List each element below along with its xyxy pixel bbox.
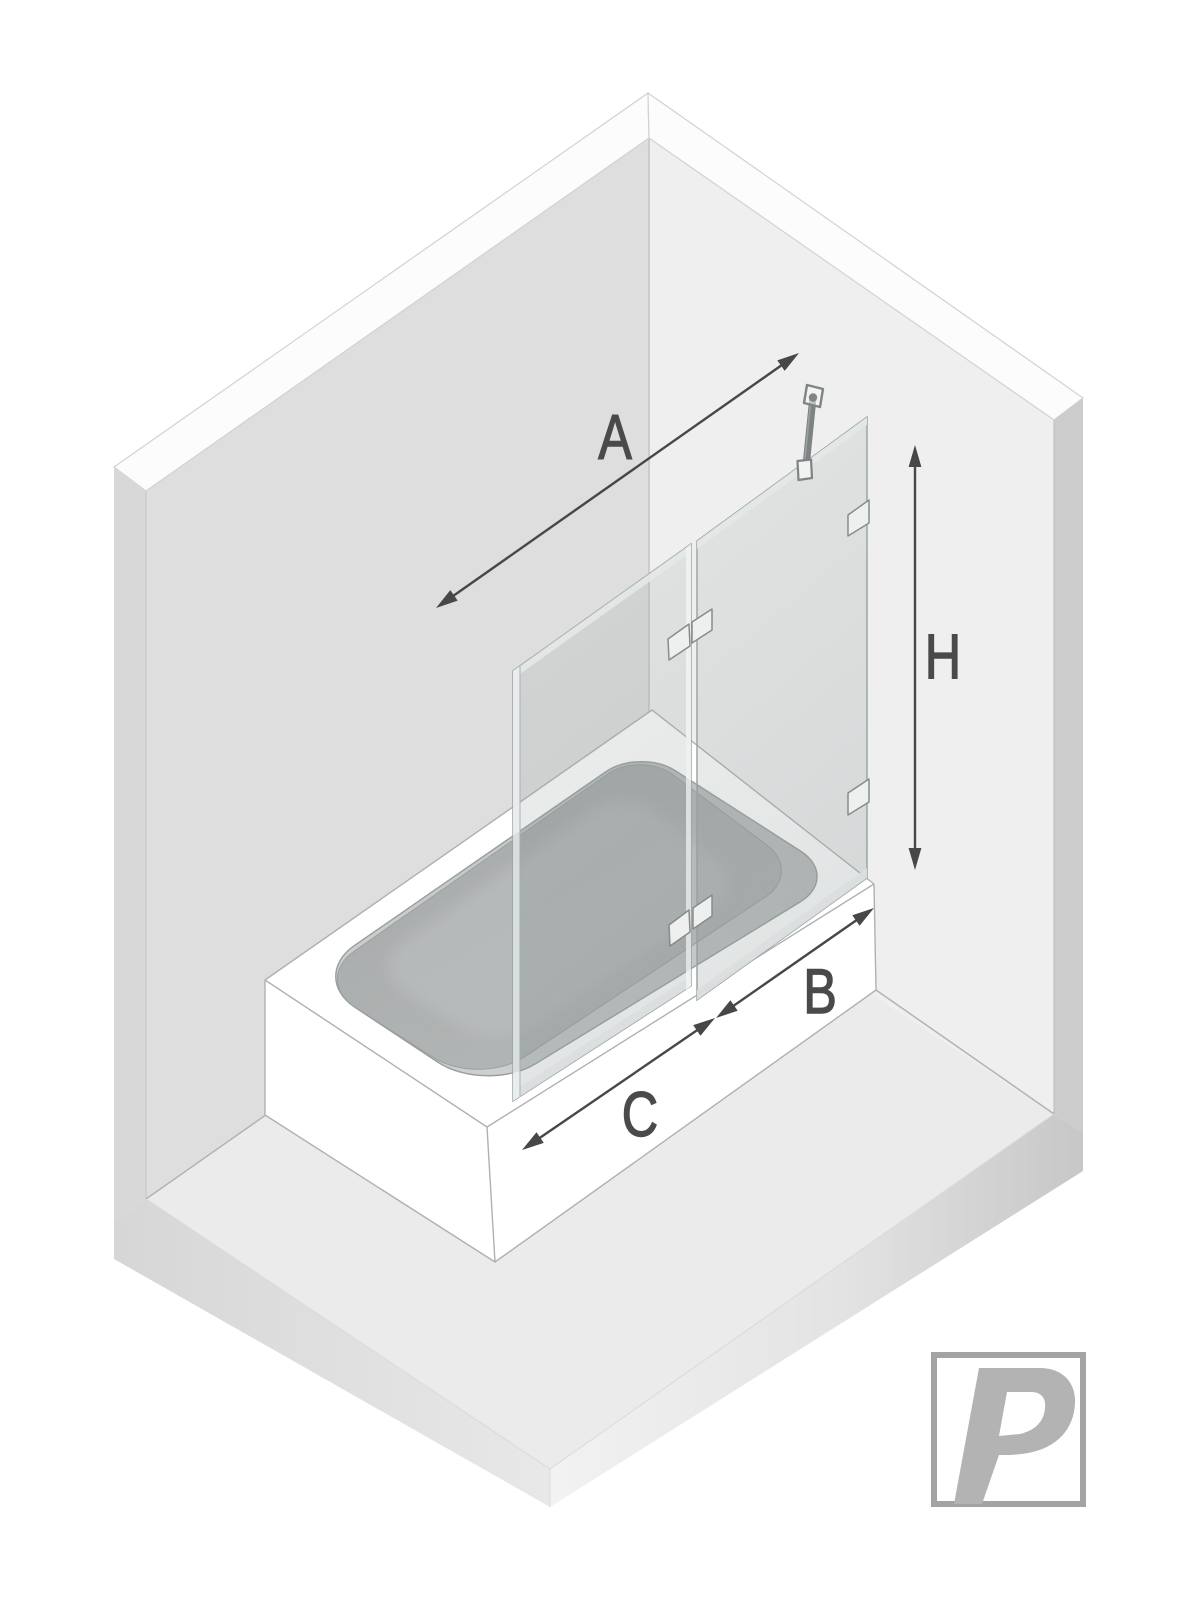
svg-text:A: A: [598, 402, 632, 473]
svg-text:H: H: [925, 622, 961, 693]
svg-text:C: C: [622, 1080, 658, 1151]
svg-text:B: B: [803, 957, 837, 1028]
